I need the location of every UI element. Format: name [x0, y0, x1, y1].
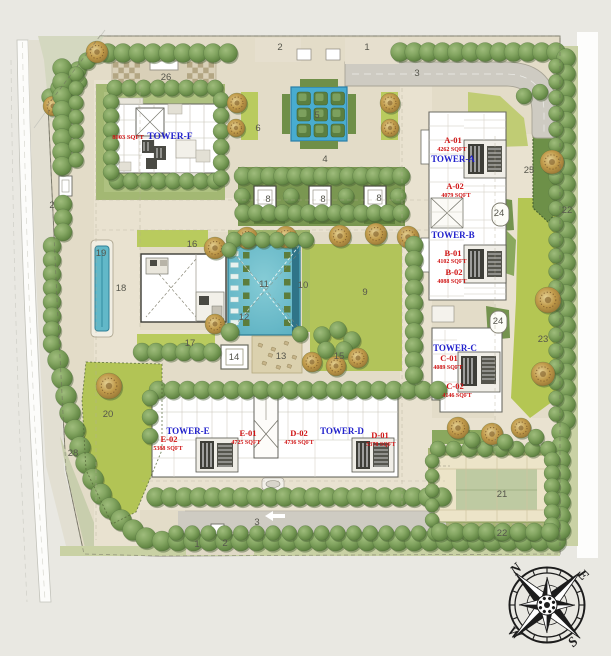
- svg-text:9: 9: [362, 287, 367, 298]
- svg-text:TOWER-F: TOWER-F: [147, 132, 192, 142]
- svg-text:25: 25: [524, 165, 535, 176]
- svg-text:TOWER-D: TOWER-D: [320, 426, 364, 436]
- svg-text:12: 12: [239, 312, 250, 323]
- svg-text:B-02: B-02: [446, 267, 463, 277]
- svg-text:4146 SQFT: 4146 SQFT: [442, 393, 471, 399]
- svg-text:E-01: E-01: [240, 428, 257, 438]
- svg-text:10: 10: [298, 280, 309, 291]
- svg-text:4079 SQFT: 4079 SQFT: [441, 193, 470, 199]
- svg-text:26: 26: [161, 72, 172, 83]
- svg-text:5: 5: [314, 110, 319, 121]
- svg-text:17: 17: [185, 338, 196, 349]
- svg-text:8: 8: [320, 194, 325, 205]
- svg-text:4: 4: [322, 154, 327, 165]
- svg-text:A-02: A-02: [446, 181, 463, 191]
- svg-text:22: 22: [497, 528, 508, 539]
- svg-text:14: 14: [229, 352, 240, 363]
- svg-text:4262 SQFT: 4262 SQFT: [437, 147, 466, 153]
- svg-text:3: 3: [254, 517, 259, 528]
- svg-text:C-02: C-02: [446, 381, 463, 391]
- svg-text:C-01: C-01: [440, 353, 457, 363]
- svg-text:B-01: B-01: [445, 248, 462, 258]
- svg-text:4088 SQFT: 4088 SQFT: [437, 279, 466, 285]
- svg-text:A-01: A-01: [444, 135, 461, 145]
- svg-text:21: 21: [497, 489, 508, 500]
- svg-text:1: 1: [194, 539, 199, 550]
- svg-text:D-01: D-01: [371, 430, 388, 440]
- svg-text:24: 24: [493, 316, 504, 327]
- svg-text:16: 16: [187, 239, 198, 250]
- svg-text:19: 19: [96, 248, 107, 259]
- svg-text:18: 18: [116, 283, 127, 294]
- svg-text:5378 SQFT: 5378 SQFT: [366, 442, 395, 448]
- svg-text:2: 2: [49, 200, 54, 211]
- svg-text:4089 SQFT: 4089 SQFT: [433, 365, 462, 371]
- svg-text:8003 SQFT: 8003 SQFT: [112, 134, 144, 141]
- svg-text:8: 8: [265, 194, 270, 205]
- svg-text:3: 3: [414, 68, 419, 79]
- svg-text:4736 SQFT: 4736 SQFT: [284, 440, 313, 446]
- svg-text:1: 1: [364, 42, 369, 53]
- svg-text:6: 6: [255, 123, 260, 134]
- svg-text:22: 22: [562, 205, 573, 216]
- svg-text:23: 23: [538, 334, 549, 345]
- svg-text:4102 SQFT: 4102 SQFT: [437, 259, 466, 265]
- svg-text:TOWER-B: TOWER-B: [431, 230, 474, 240]
- svg-text:11: 11: [259, 279, 269, 290]
- svg-text:TOWER-C: TOWER-C: [433, 343, 477, 353]
- svg-text:D-02: D-02: [290, 428, 307, 438]
- svg-text:2: 2: [277, 42, 282, 53]
- svg-text:8: 8: [376, 193, 381, 204]
- svg-text:TOWER-A: TOWER-A: [431, 154, 475, 164]
- svg-text:4725 SQFT: 4725 SQFT: [231, 440, 260, 446]
- svg-text:24: 24: [494, 208, 505, 219]
- svg-text:2: 2: [222, 538, 227, 549]
- svg-text:15: 15: [334, 351, 345, 362]
- svg-text:E-02: E-02: [161, 434, 178, 444]
- svg-text:28: 28: [68, 448, 79, 459]
- svg-text:20: 20: [103, 409, 114, 420]
- svg-text:13: 13: [276, 351, 287, 362]
- svg-text:5388 SQFT: 5388 SQFT: [153, 446, 182, 452]
